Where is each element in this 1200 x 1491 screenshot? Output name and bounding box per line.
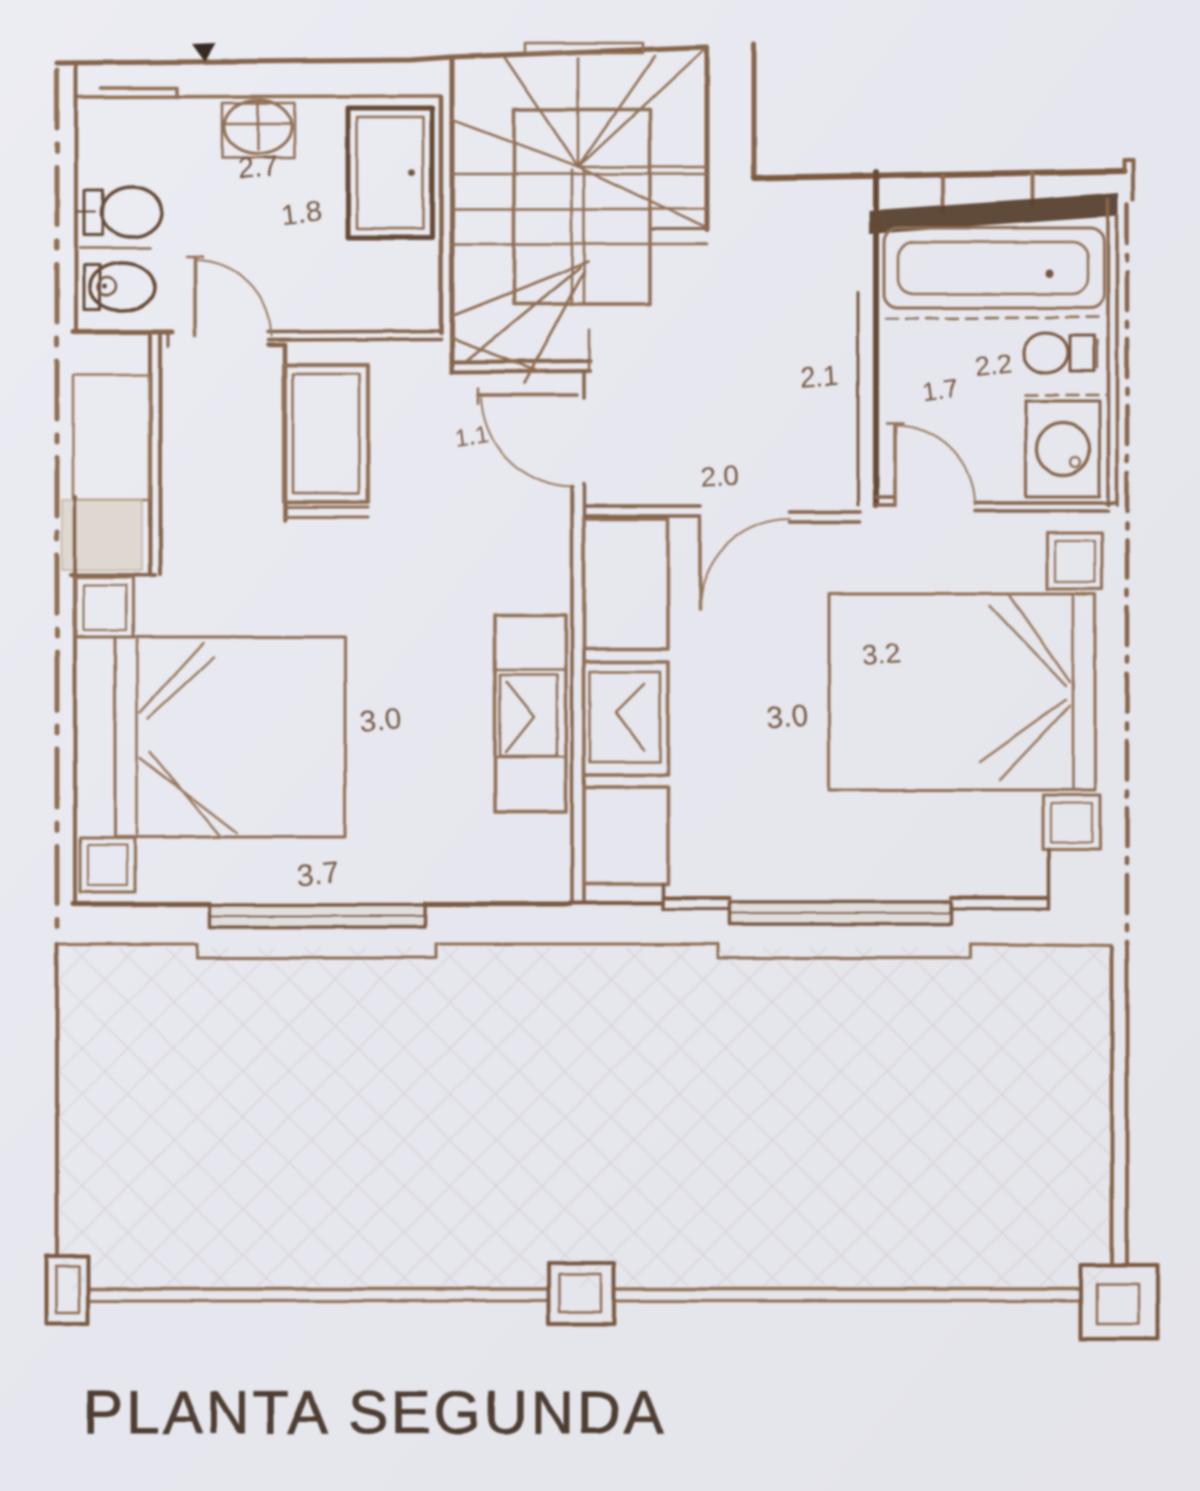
svg-text:3.7: 3.7: [295, 856, 340, 893]
svg-text:3.0: 3.0: [359, 703, 403, 739]
svg-text:2.1: 2.1: [799, 360, 840, 394]
svg-text:2.2: 2.2: [973, 348, 1013, 382]
svg-text:PLANTA SEGUNDA: PLANTA SEGUNDA: [83, 1379, 667, 1446]
svg-text:1.7: 1.7: [920, 373, 960, 408]
svg-text:3.2: 3.2: [861, 638, 902, 672]
svg-text:2.0: 2.0: [699, 460, 740, 493]
svg-text:2.7: 2.7: [237, 151, 279, 186]
svg-text:1.8: 1.8: [279, 196, 323, 233]
svg-text:3.0: 3.0: [765, 700, 809, 736]
svg-text:1.1: 1.1: [453, 422, 490, 453]
